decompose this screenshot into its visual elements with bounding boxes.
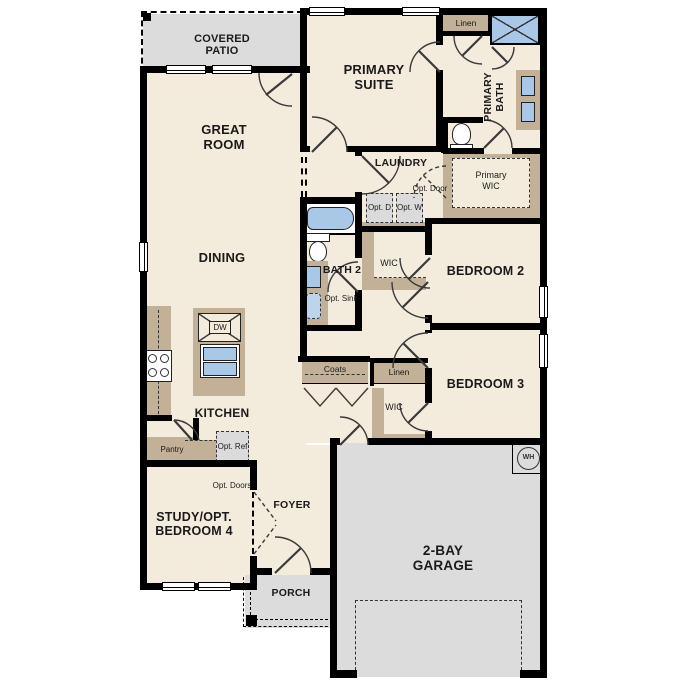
wall-bedroom3-left-a — [425, 330, 432, 333]
opt-dryer-label: Opt. D — [368, 203, 391, 212]
pantry-label: Pantry — [147, 445, 197, 455]
wall-linen2-top — [370, 358, 428, 363]
wall-laundry-left-a — [355, 146, 362, 156]
kitchen-sink-basin-1 — [203, 347, 237, 361]
wall-bedroom2-bottom — [430, 323, 547, 330]
wall-foyer-porch-a — [257, 568, 272, 575]
range-burner-3 — [148, 368, 157, 377]
primary-sink-1 — [521, 76, 535, 96]
wall-bath2-left — [300, 197, 307, 331]
opt-washer-box: Opt. W — [396, 193, 423, 223]
window-bedroom2 — [539, 286, 548, 318]
bath2-label: BATH 2 — [322, 265, 362, 277]
wall-bath2-bottom — [300, 325, 362, 331]
great-room-label: GREAT ROOM — [185, 123, 263, 152]
window-greatroom-2 — [212, 65, 252, 74]
opt-ref-box: Opt. Ref — [216, 431, 249, 462]
range-burner-2 — [160, 354, 169, 363]
wic2-label: WIC — [374, 258, 404, 269]
floor-plan: DW Opt. D Opt. W Opt. Ref WH — [0, 0, 687, 687]
shower — [490, 14, 540, 45]
porch-corner-post — [246, 615, 257, 626]
wall-suite-left — [300, 8, 307, 152]
window-bedroom3 — [539, 334, 548, 368]
bath2-toilet-bowl — [309, 241, 327, 262]
bath2-opt-sink — [306, 293, 321, 319]
coats-label: Coats — [305, 364, 365, 374]
primary-toilet-bowl — [452, 123, 471, 145]
dishwasher-label-box: DW — [209, 321, 231, 334]
wall-pwic-top-a — [443, 148, 484, 154]
window-study-1 — [162, 582, 195, 591]
tub — [307, 207, 354, 230]
wall-hall-left — [300, 331, 307, 362]
dishwasher-label: DW — [213, 323, 226, 332]
wall-wc-left — [441, 117, 448, 153]
wall-bedroom2-top — [430, 218, 547, 224]
bedroom3-label: BEDROOM 3 — [428, 377, 543, 391]
cased-opening-dash-2 — [305, 157, 307, 197]
window-suite-2 — [402, 7, 440, 16]
cased-opening-dash-1 — [301, 157, 303, 197]
window-greatroom-1 — [166, 65, 206, 74]
garage-label: 2-BAY GARAGE — [393, 543, 493, 573]
linen-upper-label: Linen — [443, 18, 489, 28]
primary-bath-label: PRIMARY BATH — [483, 57, 511, 137]
window-dining — [139, 242, 148, 272]
wall-study-right-b — [250, 556, 257, 590]
wall-bedroom2-left-b — [425, 315, 432, 323]
garage-door-dashed — [355, 600, 522, 670]
foyer-label: FOYER — [262, 500, 322, 512]
opt-dryer-box: Opt. D — [366, 193, 393, 223]
wic2-floor — [374, 232, 426, 278]
primary-wic-label: Primary WIC — [466, 170, 516, 192]
primary-sink-2 — [521, 102, 535, 122]
wall-pantry-right — [193, 418, 199, 440]
wic3-label: WIC — [379, 402, 409, 413]
wall-garage-left — [330, 443, 337, 677]
dining-label: DINING — [182, 251, 262, 266]
opt-door-label: Opt. Door — [412, 184, 448, 194]
opt-sink-label: Opt. Sink — [324, 294, 358, 304]
wall-bedroom3-left-c — [425, 431, 432, 445]
window-suite-1 — [309, 7, 345, 16]
water-heater-circle: WH — [517, 447, 540, 470]
opt-doors-label: Opt. Doors — [210, 481, 254, 491]
wall-suite-right-a — [436, 15, 443, 45]
wall-laundry-bottom — [355, 226, 430, 232]
wall-coats-top — [298, 356, 370, 362]
water-heater-label: WH — [523, 454, 535, 461]
wall-bedroom2-left-a — [425, 218, 432, 255]
opt-washer-label: Opt. W — [397, 203, 422, 212]
bath2-sink — [306, 266, 321, 288]
range-burner-1 — [148, 354, 157, 363]
patio-corner-post — [143, 13, 151, 21]
wall-linen-upper-bottom — [443, 31, 490, 36]
laundry-label: LAUNDRY — [366, 158, 436, 170]
wall-bath2-top — [300, 197, 362, 203]
range-burner-4 — [160, 368, 169, 377]
study-label: STUDY/OPT. BEDROOM 4 — [133, 510, 255, 538]
linen-lower-label: Linen — [372, 367, 426, 377]
window-study-2 — [198, 582, 231, 591]
wall-garage-top-b — [368, 438, 547, 445]
covered-patio-label: COVERED PATIO — [182, 33, 262, 58]
kitchen-sink-basin-2 — [203, 362, 237, 376]
wall-laundry-left-b — [355, 192, 362, 258]
opt-ref-label: Opt. Ref — [218, 442, 248, 451]
primary-suite-label: PRIMARY SUITE — [332, 63, 416, 92]
wall-kitchen-study — [140, 460, 257, 467]
bedroom2-label: BEDROOM 2 — [428, 264, 543, 278]
kitchen-label: KITCHEN — [172, 407, 272, 420]
porch-label: PORCH — [261, 588, 321, 600]
